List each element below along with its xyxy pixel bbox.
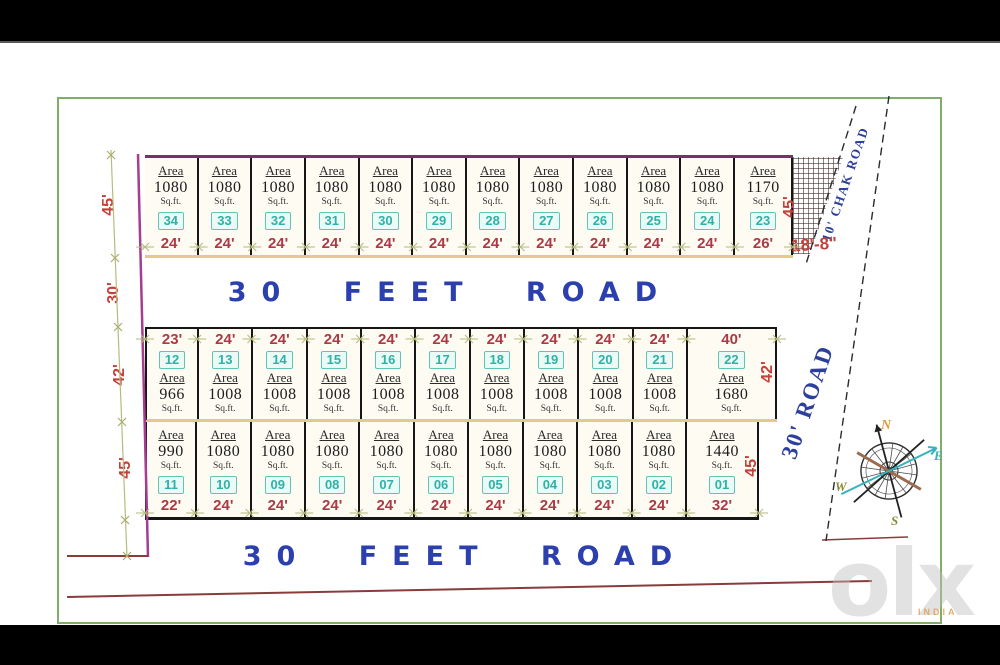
plot-area-block: Area990Sq.ft.: [158, 427, 184, 471]
plot-02: Area1080Sq.ft.0224': [633, 422, 687, 517]
plot-21: Area1008Sq.ft.2124': [634, 329, 688, 419]
plot-number-badge: 29: [426, 212, 452, 230]
plot-area-value: 1440: [705, 443, 739, 461]
plot-28: Area1080Sq.ft.2824': [467, 158, 521, 255]
plot-area-unit: Sq.ft.: [154, 197, 188, 207]
compass-south-label: S: [891, 513, 898, 527]
plot-34: Area1080Sq.ft.3424': [145, 158, 199, 255]
plot-area-unit: Sq.ft.: [705, 461, 739, 471]
plot-number-badge: 11: [158, 476, 184, 494]
dimension-right-bot: 45': [743, 455, 761, 477]
plot-number-badge: 31: [319, 212, 345, 230]
compass-west-label: W: [835, 479, 848, 494]
plot-number-badge: 32: [265, 212, 291, 230]
plot-number-badge: 09: [265, 476, 291, 494]
plot-number-badge: 16: [375, 351, 401, 369]
plot-area-value: 1008: [263, 386, 297, 404]
plot-number-badge: 20: [592, 351, 618, 369]
plot-area-word: Area: [587, 427, 621, 443]
plot-area-word: Area: [424, 427, 458, 443]
plot-area-word: Area: [642, 427, 676, 443]
plot-14: Area1008Sq.ft.1424': [253, 329, 307, 419]
plot-number-badge: 26: [587, 212, 613, 230]
plot-width-label: 24': [360, 235, 412, 252]
plot-area-word: Area: [476, 163, 510, 179]
plot-11: Area990Sq.ft.1122': [147, 422, 197, 517]
plot-number-badge: 13: [212, 351, 238, 369]
middle-road-label: 30 FEET ROAD: [195, 277, 705, 308]
plot-area-unit: Sq.ft.: [533, 461, 567, 471]
plot-area-value: 1008: [208, 386, 242, 404]
plot-width-label: 24': [199, 331, 251, 348]
plot-area-value: 990: [158, 443, 184, 461]
plot-area-word: Area: [529, 163, 563, 179]
dimension-right-top: 45': [781, 196, 799, 218]
plot-width-label: 24': [520, 235, 572, 252]
plot-number-badge: 22: [718, 351, 744, 369]
plot-area-unit: Sq.ft.: [476, 197, 510, 207]
plot-area-block: Area1080Sq.ft.: [533, 427, 567, 471]
olx-watermark-sub: INDIA: [918, 607, 958, 617]
plot-area-unit: Sq.ft.: [587, 461, 621, 471]
plot-width-label: 24': [252, 497, 304, 514]
plot-area-block: Area1080Sq.ft.: [154, 163, 188, 207]
plot-number-badge: 12: [159, 351, 185, 369]
plot-13: Area1008Sq.ft.1324': [199, 329, 253, 419]
plot-area-value: 1080: [529, 179, 563, 197]
plot-number-badge: 01: [709, 476, 735, 494]
plot-number-badge: 30: [372, 212, 398, 230]
plot-area-word: Area: [533, 427, 567, 443]
plot-area-block: Area1008Sq.ft.: [534, 370, 568, 414]
plot-area-unit: Sq.ft.: [714, 404, 748, 414]
plot-row-middle: Area966Sq.ft.1223'Area1008Sq.ft.1324'Are…: [145, 327, 777, 422]
plot-width-label: 24': [628, 235, 680, 252]
plot-31: Area1080Sq.ft.3124': [306, 158, 360, 255]
plot-area-block: Area1008Sq.ft.: [263, 370, 297, 414]
plot-width-label: 24': [469, 497, 521, 514]
compass-rose-icon: N E S W: [833, 415, 945, 527]
plot-area-block: Area1080Sq.ft.: [587, 427, 621, 471]
plot-26: Area1080Sq.ft.2624': [574, 158, 628, 255]
top-letterbox-bar: [0, 0, 1000, 43]
plot-area-block: Area1080Sq.ft.: [529, 163, 563, 207]
plot-area-unit: Sq.ft.: [690, 197, 724, 207]
plot-width-label: 24': [199, 235, 251, 252]
plot-area-value: 1080: [370, 443, 404, 461]
plot-area-block: Area1080Sq.ft.: [368, 163, 402, 207]
plot-area-block: Area1080Sq.ft.: [637, 163, 671, 207]
plot-width-label: 23': [147, 331, 197, 348]
plot-25: Area1080Sq.ft.2524': [628, 158, 682, 255]
plot-area-value: 1080: [424, 443, 458, 461]
dimension-right-mid: 42': [759, 361, 777, 383]
plot-area-block: Area1080Sq.ft.: [315, 163, 349, 207]
plot-area-word: Area: [583, 163, 617, 179]
plot-area-block: Area1008Sq.ft.: [643, 370, 677, 414]
plot-area-unit: Sq.ft.: [368, 197, 402, 207]
plot-area-word: Area: [207, 163, 241, 179]
plot-area-unit: Sq.ft.: [261, 197, 295, 207]
plot-16: Area1008Sq.ft.1624': [362, 329, 416, 419]
plot-area-word: Area: [263, 370, 297, 386]
plot-width-label: 26': [735, 235, 791, 252]
plot-area-unit: Sq.ft.: [583, 197, 617, 207]
plot-width-label: 24': [306, 497, 358, 514]
plot-number-badge: 03: [591, 476, 617, 494]
plot-width-label: 24': [413, 235, 465, 252]
plot-width-label: 40': [688, 331, 775, 348]
plot-area-word: Area: [206, 427, 240, 443]
plot-area-value: 1008: [534, 386, 568, 404]
plot-area-unit: Sq.ft.: [159, 404, 185, 414]
plot-area-word: Area: [588, 370, 622, 386]
plot-area-unit: Sq.ft.: [263, 404, 297, 414]
plot-area-block: Area1008Sq.ft.: [317, 370, 351, 414]
plot-width-label: 24': [360, 497, 412, 514]
plot-width-label: 22': [147, 497, 195, 514]
plot-area-unit: Sq.ft.: [642, 461, 676, 471]
plot-area-word: Area: [261, 427, 295, 443]
plot-03: Area1080Sq.ft.0324': [578, 422, 632, 517]
plot-area-word: Area: [637, 163, 671, 179]
plot-width-label: 24': [252, 235, 304, 252]
plot-15: Area1008Sq.ft.1524': [308, 329, 362, 419]
compass-north-label: N: [880, 418, 892, 433]
plot-area-word: Area: [315, 163, 349, 179]
plot-area-word: Area: [159, 370, 185, 386]
plot-width-label: 24': [308, 331, 360, 348]
plot-area-unit: Sq.ft.: [643, 404, 677, 414]
plot-area-word: Area: [158, 427, 184, 443]
plot-area-word: Area: [154, 163, 188, 179]
plot-area-value: 1080: [261, 443, 295, 461]
plot-area-word: Area: [480, 370, 514, 386]
plot-area-word: Area: [643, 370, 677, 386]
plot-area-unit: Sq.ft.: [637, 197, 671, 207]
plot-area-value: 1080: [476, 179, 510, 197]
plot-area-unit: Sq.ft.: [317, 404, 351, 414]
plot-width-label: 24': [524, 497, 576, 514]
plot-33: Area1080Sq.ft.3324': [199, 158, 253, 255]
plot-area-block: Area966Sq.ft.: [159, 370, 185, 414]
plot-width-label: 24': [306, 235, 358, 252]
plot-area-unit: Sq.ft.: [480, 404, 514, 414]
plot-08: Area1080Sq.ft.0824': [306, 422, 360, 517]
plot-30: Area1080Sq.ft.3024': [360, 158, 414, 255]
plot-area-word: Area: [317, 370, 351, 386]
plot-area-block: Area1080Sq.ft.: [207, 163, 241, 207]
plot-area-value: 1680: [714, 386, 748, 404]
plot-area-value: 1080: [368, 179, 402, 197]
plot-width-label: 24': [415, 497, 467, 514]
plot-area-value: 1080: [261, 179, 295, 197]
plot-width-label: 24': [634, 331, 686, 348]
plot-width-label: 24': [197, 497, 249, 514]
plot-07: Area1080Sq.ft.0724': [360, 422, 414, 517]
plot-area-block: Area1080Sq.ft.: [206, 427, 240, 471]
plot-row-bottom: Area990Sq.ft.1122'Area1080Sq.ft.1024'Are…: [145, 422, 759, 520]
plot-area-value: 1080: [154, 179, 188, 197]
plot-width-label: 24': [681, 235, 733, 252]
plot-area-value: 1080: [587, 443, 621, 461]
plot-area-unit: Sq.ft.: [370, 461, 404, 471]
plot-area-value: 1080: [583, 179, 617, 197]
plot-area-unit: Sq.ft.: [529, 197, 563, 207]
plot-number-badge: 24: [694, 212, 720, 230]
plot-area-value: 966: [159, 386, 185, 404]
dimension-left-45b: 45': [117, 457, 135, 479]
plot-04: Area1080Sq.ft.0424': [524, 422, 578, 517]
plot-area-value: 1008: [588, 386, 622, 404]
plot-number-badge: 15: [321, 351, 347, 369]
plot-width-label: 24': [253, 331, 305, 348]
plot-area-word: Area: [690, 163, 724, 179]
plot-area-block: Area1008Sq.ft.: [480, 370, 514, 414]
plot-17: Area1008Sq.ft.1724': [416, 329, 470, 419]
plot-area-unit: Sq.ft.: [158, 461, 184, 471]
bottom-road-label: 30 FEET ROAD: [210, 541, 720, 572]
plot-area-word: Area: [425, 370, 459, 386]
plot-number-badge: 05: [482, 476, 508, 494]
plot-area-block: Area1080Sq.ft.: [315, 427, 349, 471]
plot-area-value: 1080: [422, 179, 456, 197]
plot-number-badge: 25: [640, 212, 666, 230]
plot-area-word: Area: [370, 427, 404, 443]
plot-18: Area1008Sq.ft.1824': [471, 329, 525, 419]
plot-area-block: Area1080Sq.ft.: [690, 163, 724, 207]
plot-width-label: 24': [362, 331, 414, 348]
bottom-letterbox-bar: [0, 625, 1000, 665]
plot-area-word: Area: [422, 163, 456, 179]
plot-area-word: Area: [705, 427, 739, 443]
plot-row-top: Area1080Sq.ft.3424'Area1080Sq.ft.3324'Ar…: [145, 155, 793, 258]
plot-number-badge: 33: [211, 212, 237, 230]
plot-number-badge: 21: [646, 351, 672, 369]
plot-area-block: Area1680Sq.ft.: [714, 370, 748, 414]
plot-19: Area1008Sq.ft.1924': [525, 329, 579, 419]
plot-area-block: Area1080Sq.ft.: [583, 163, 617, 207]
plot-area-value: 1080: [637, 179, 671, 197]
plot-area-value: 1170: [746, 179, 779, 197]
plot-width-label: 24': [633, 497, 685, 514]
plot-29: Area1080Sq.ft.2924': [413, 158, 467, 255]
dimension-left-42: 42': [111, 364, 129, 386]
plot-area-unit: Sq.ft.: [425, 404, 459, 414]
plot-area-unit: Sq.ft.: [315, 461, 349, 471]
plot-area-value: 1080: [206, 443, 240, 461]
plot-area-block: Area1008Sq.ft.: [208, 370, 242, 414]
plot-area-value: 1008: [371, 386, 405, 404]
plot-width-label: 24': [525, 331, 577, 348]
plot-width-label: 32': [687, 497, 757, 514]
plot-06: Area1080Sq.ft.0624': [415, 422, 469, 517]
plot-20: Area1008Sq.ft.2024': [579, 329, 633, 419]
plot-area-value: 1008: [480, 386, 514, 404]
plot-area-block: Area1080Sq.ft.: [476, 163, 510, 207]
plot-number-badge: 17: [429, 351, 455, 369]
plot-number-badge: 04: [537, 476, 563, 494]
plot-area-word: Area: [315, 427, 349, 443]
plot-width-label: 24': [579, 331, 631, 348]
plot-area-unit: Sq.ft.: [534, 404, 568, 414]
dimension-hatch-width: 18'-8": [790, 233, 837, 256]
plot-area-value: 1008: [317, 386, 351, 404]
plot-area-block: Area1008Sq.ft.: [425, 370, 459, 414]
plot-area-block: Area1080Sq.ft.: [642, 427, 676, 471]
plot-number-badge: 07: [373, 476, 399, 494]
plot-area-value: 1080: [315, 179, 349, 197]
plot-number-badge: 19: [538, 351, 564, 369]
plot-area-value: 1080: [478, 443, 512, 461]
plot-32: Area1080Sq.ft.3224': [252, 158, 306, 255]
plot-number-badge: 18: [484, 351, 510, 369]
plot-number-badge: 06: [428, 476, 454, 494]
plot-area-block: Area1170Sq.ft.: [746, 163, 779, 207]
plot-area-unit: Sq.ft.: [315, 197, 349, 207]
plot-area-block: Area1080Sq.ft.: [424, 427, 458, 471]
plot-area-value: 1008: [425, 386, 459, 404]
plot-area-unit: Sq.ft.: [478, 461, 512, 471]
plot-area-value: 1080: [642, 443, 676, 461]
plot-area-block: Area1008Sq.ft.: [588, 370, 622, 414]
plot-area-block: Area1080Sq.ft.: [422, 163, 456, 207]
plot-area-word: Area: [714, 370, 748, 386]
plot-area-block: Area1080Sq.ft.: [261, 427, 295, 471]
plot-area-word: Area: [208, 370, 242, 386]
plot-number-badge: 28: [479, 212, 505, 230]
plot-number-badge: 14: [266, 351, 292, 369]
plot-width-label: 24': [145, 235, 197, 252]
plot-area-unit: Sq.ft.: [371, 404, 405, 414]
plot-width-label: 24': [467, 235, 519, 252]
plot-number-badge: 34: [158, 212, 184, 230]
plot-area-word: Area: [534, 370, 568, 386]
plot-number-badge: 08: [319, 476, 345, 494]
plot-area-unit: Sq.ft.: [206, 461, 240, 471]
dimension-left-45: 45': [100, 194, 118, 216]
plot-10: Area1080Sq.ft.1024': [197, 422, 251, 517]
plot-width-label: 24': [416, 331, 468, 348]
plot-width-label: 24': [471, 331, 523, 348]
plot-width-label: 24': [578, 497, 630, 514]
plot-area-unit: Sq.ft.: [422, 197, 456, 207]
plot-area-word: Area: [371, 370, 405, 386]
plot-area-word: Area: [368, 163, 402, 179]
plot-27: Area1080Sq.ft.2724': [520, 158, 574, 255]
plot-area-block: Area1080Sq.ft.: [478, 427, 512, 471]
plot-12: Area966Sq.ft.1223': [147, 329, 199, 419]
dimension-left-30: 30': [105, 282, 123, 304]
plot-area-block: Area1008Sq.ft.: [371, 370, 405, 414]
plot-width-label: 24': [574, 235, 626, 252]
plot-area-unit: Sq.ft.: [588, 404, 622, 414]
plot-area-unit: Sq.ft.: [746, 197, 779, 207]
compass-east-label: E: [933, 448, 943, 463]
plot-number-badge: 27: [533, 212, 559, 230]
plot-area-value: 1080: [533, 443, 567, 461]
plot-05: Area1080Sq.ft.0524': [469, 422, 523, 517]
plot-area-word: Area: [261, 163, 295, 179]
plot-area-block: Area1080Sq.ft.: [261, 163, 295, 207]
plot-area-value: 1080: [690, 179, 724, 197]
plot-area-block: Area1080Sq.ft.: [370, 427, 404, 471]
site-plan-image: Area1080Sq.ft.3424'Area1080Sq.ft.3324'Ar…: [0, 0, 1000, 665]
plot-area-word: Area: [746, 163, 779, 179]
plot-area-word: Area: [478, 427, 512, 443]
plot-number-badge: 23: [750, 212, 776, 230]
plot-area-block: Area1440Sq.ft.: [705, 427, 739, 471]
plot-area-unit: Sq.ft.: [207, 197, 241, 207]
plot-area-unit: Sq.ft.: [261, 461, 295, 471]
plot-24: Area1080Sq.ft.2424': [681, 158, 735, 255]
plot-09: Area1080Sq.ft.0924': [252, 422, 306, 517]
plot-number-badge: 10: [210, 476, 236, 494]
plot-number-badge: 02: [646, 476, 672, 494]
plot-area-value: 1008: [643, 386, 677, 404]
plot-area-value: 1080: [315, 443, 349, 461]
plot-area-unit: Sq.ft.: [424, 461, 458, 471]
plot-area-value: 1080: [207, 179, 241, 197]
plot-area-unit: Sq.ft.: [208, 404, 242, 414]
